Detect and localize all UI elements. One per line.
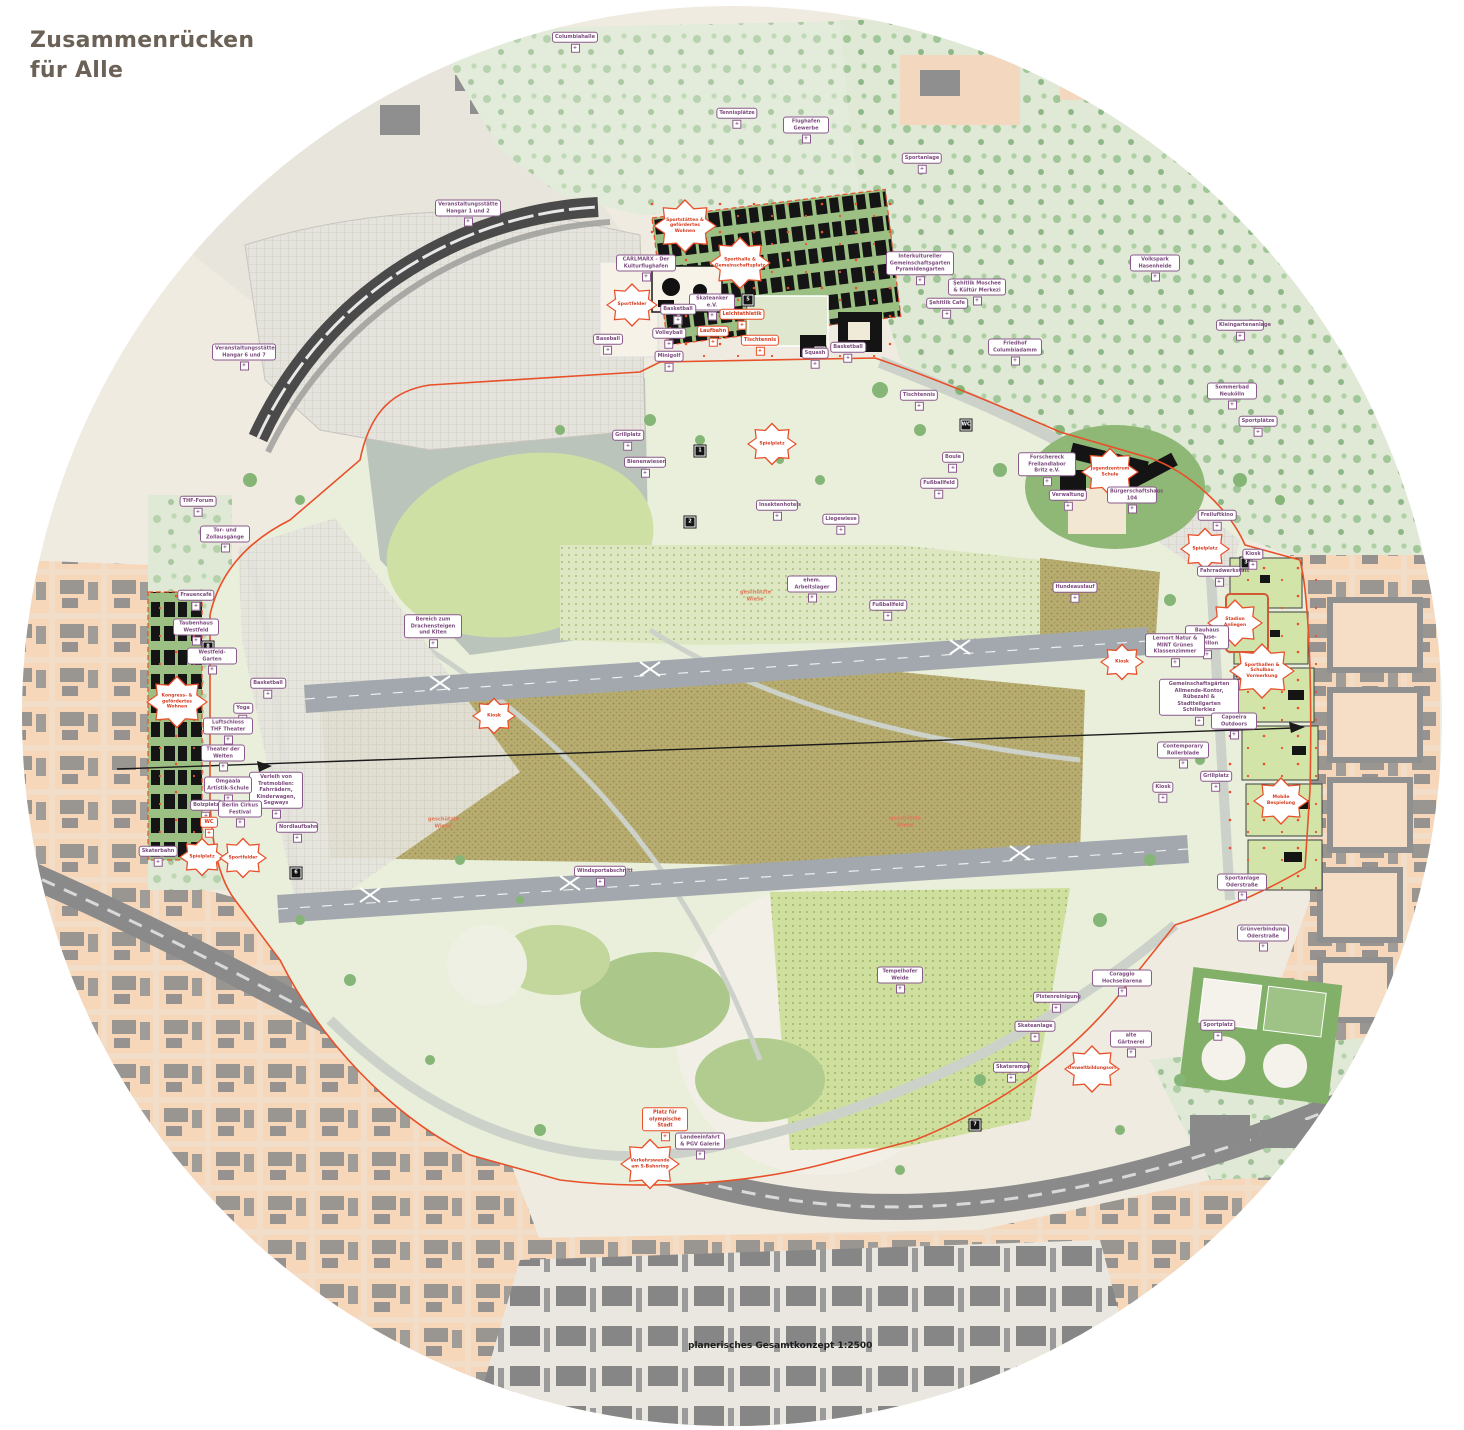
poi-pin-icon: + [756, 346, 765, 355]
map-label: Kiosk+ [1152, 782, 1173, 803]
map-label: Columbiahalle+ [552, 32, 598, 53]
map-label: Veranstaltungsstätte Hangar 6 und 7+ [212, 344, 276, 371]
map-label: Grillplatz+ [1200, 771, 1232, 792]
map-label: Baseball+ [593, 334, 623, 355]
map-label: Frauencafé+ [177, 590, 214, 611]
map-label: Basketball+ [830, 342, 866, 363]
poi-pin-icon: + [673, 315, 682, 324]
map-label: Minigolf+ [655, 351, 684, 372]
map-starburst-label: Sportfelder [219, 838, 267, 879]
poi-pin-icon: + [272, 809, 281, 818]
map-label: Volleyball+ [652, 328, 686, 349]
map-label: Şehitlik Moschee & Kültür Merkezi+ [948, 279, 1006, 306]
poi-pin-icon: + [464, 218, 473, 227]
poi-pin-icon: + [208, 666, 217, 675]
map-starburst-label: Spielplatz [747, 423, 797, 466]
map-starburst-label: Kiosk [472, 698, 516, 735]
poi-pin-icon: + [884, 611, 893, 620]
poi-pin-icon: + [696, 1151, 705, 1160]
map-label: geschützte Wiese [888, 815, 922, 830]
poi-pin-icon: + [1259, 943, 1268, 952]
map-label: alte Gärtnerei+ [1110, 1031, 1152, 1058]
map-label: Liegewiese+ [822, 514, 859, 535]
poi-pin-icon: + [240, 362, 249, 371]
poi-pin-icon: + [224, 736, 233, 745]
map-labels-layer: Columbiahalle+Tennisplätze+Flughafen Gew… [0, 0, 1464, 1430]
map-marker: 9 [1235, 668, 1246, 679]
poi-pin-icon: + [1213, 1031, 1222, 1040]
map-label: Fußballfeld+ [869, 600, 907, 621]
map-label: geschützte Wiese [738, 589, 772, 604]
map-starburst-label: Mobile Bespielung [1253, 777, 1309, 825]
map-label: geschützte Wiese [426, 816, 460, 831]
poi-pin-icon: + [1151, 273, 1160, 282]
map-label: Flughafen Gewerbe+ [783, 117, 829, 144]
map-label: Basketball+ [250, 678, 286, 699]
map-marker: 2 [685, 517, 696, 528]
map-label: Skaterbahn+ [139, 846, 178, 867]
poi-pin-icon: + [1171, 658, 1180, 667]
poi-pin-icon: + [1212, 521, 1221, 530]
map-label: Berlin Cirkus Festival+ [218, 801, 262, 828]
poi-pin-icon: + [1179, 760, 1188, 769]
poi-pin-icon: + [202, 811, 211, 820]
poi-pin-icon: + [918, 164, 927, 173]
map-label: Tischtennis+ [741, 335, 779, 356]
map-label: Grillplatz+ [612, 430, 644, 451]
poi-pin-icon: + [641, 468, 650, 477]
map-label: Volkspark Hasenheide+ [1130, 255, 1180, 282]
poi-pin-icon: + [1118, 988, 1127, 997]
map-label: Bauhaus Reuse-Pavillon+ [1185, 625, 1229, 659]
map-label: Interkultureller Gemeinschaftsgarten Pyr… [886, 251, 954, 285]
map-starburst-label: Kongress- & gefördertes Wohnen [146, 676, 208, 729]
poi-pin-icon: + [1064, 501, 1073, 510]
map-label: Pistenreinigung+ [1033, 992, 1079, 1013]
map-label: Skaterampe+ [993, 1062, 1029, 1083]
poi-pin-icon: + [193, 507, 202, 516]
map-label: Windsportabschnitt+ [574, 866, 626, 887]
map-starburst-label: Sportstätten & gefördertes Wohnen [653, 199, 717, 253]
map-label: Tempelhofer Weide+ [877, 967, 923, 994]
poi-pin-icon: + [293, 833, 302, 842]
map-label: Fußballfeld+ [920, 478, 958, 499]
map-label: Laufbahn+ [697, 326, 729, 347]
map-caption: planerisches Gesamtkonzept 1:2500 [688, 1341, 872, 1351]
poi-pin-icon: + [843, 353, 852, 362]
map-starburst-label: Stadion Anliegen [1207, 599, 1263, 647]
map-label: Insektenhotels+ [756, 500, 798, 521]
poi-pin-icon: + [1212, 782, 1221, 791]
poi-pin-icon: + [661, 1132, 670, 1141]
map-label: THF-Forum+ [180, 496, 217, 517]
poi-pin-icon: + [1007, 1073, 1016, 1082]
map-starburst-label: Spielplatz [179, 838, 225, 877]
page-title: Zusammenrücken für Alle [30, 26, 254, 85]
map-label: WC+ [200, 817, 218, 838]
poi-pin-icon: + [205, 828, 214, 837]
map-starburst-label: Spielplatz [1180, 528, 1230, 571]
poi-pin-icon: + [1254, 427, 1263, 436]
map-label: Sportplatz+ [1200, 1020, 1235, 1041]
poi-pin-icon: + [1127, 1049, 1136, 1058]
map-marker: WC [961, 420, 972, 431]
poi-pin-icon: + [708, 312, 717, 321]
map-label: Tischtennis+ [900, 390, 938, 411]
poi-pin-icon: + [836, 525, 845, 534]
poi-pin-icon: + [916, 276, 925, 285]
poi-pin-icon: + [239, 714, 248, 723]
map-label: Sommerbad Neukölln+ [1207, 383, 1257, 410]
map-label: Gemeinschaftsgärten Allmende-Kontor, Rüb… [1159, 679, 1239, 726]
poi-pin-icon: + [224, 795, 233, 804]
map-label: Coraggio Hochseilarena+ [1092, 970, 1152, 997]
poi-pin-icon: + [1238, 892, 1247, 901]
poi-pin-icon: + [948, 463, 957, 472]
map-label: Boule+ [942, 452, 964, 473]
poi-pin-icon: + [219, 763, 228, 772]
map-label: Landeeinfahrt & PGV Galerie+ [675, 1133, 725, 1160]
poi-pin-icon: + [709, 337, 718, 346]
map-label: Bolzplatz+ [190, 800, 222, 821]
map-label: Şehitlik Cafe+ [926, 298, 968, 319]
map-label: Verleih von Tretmobilen: Fahrrädern, Kin… [249, 772, 303, 819]
poi-pin-icon: + [1215, 577, 1224, 586]
map-label: Platz für olympische Stadt+ [642, 1107, 688, 1141]
map-label: Bienenwiesen+ [624, 457, 666, 478]
map-marker: 6 [291, 868, 302, 879]
poi-pin-icon: + [811, 359, 820, 368]
map-label: Basketball+ [660, 304, 696, 325]
poi-pin-icon: + [665, 339, 674, 348]
poi-pin-icon: + [1158, 793, 1167, 802]
poi-pin-icon: + [773, 511, 782, 520]
poi-pin-icon: + [1030, 1032, 1039, 1041]
map-label: Capoeira Outdoors+ [1211, 713, 1257, 740]
map-label: Tor- und Zollausgänge+ [200, 526, 250, 553]
poi-pin-icon: + [429, 639, 438, 648]
poi-pin-icon: + [942, 309, 951, 318]
map-label: Skateanlage+ [1014, 1021, 1055, 1042]
poi-pin-icon: + [973, 297, 982, 306]
map-starburst-label: Jugendzentrum Schule [1081, 448, 1139, 497]
poi-pin-icon: + [1203, 650, 1212, 659]
poi-pin-icon: + [733, 119, 742, 128]
map-label: Forschereck Freilandlabor Britz e.V.+ [1018, 452, 1076, 486]
map-label: Freiluftkino+ [1198, 510, 1237, 531]
poi-pin-icon: + [935, 489, 944, 498]
map-label: Lernort Natur & MINT Grünes Klassenzimme… [1145, 633, 1205, 667]
map-label: Grünverbindung Oderstraße+ [1237, 925, 1289, 952]
poi-pin-icon: + [263, 689, 272, 698]
map-label: Luftschloss THF Theater+ [203, 718, 253, 745]
poi-pin-icon: + [1070, 593, 1079, 602]
poi-pin-icon: + [1052, 1003, 1061, 1012]
poi-pin-icon: + [808, 594, 817, 603]
map-label: Hundeauslauf+ [1052, 582, 1097, 603]
map-label: Skateanker e.V.+ [689, 294, 735, 321]
poi-pin-icon: + [1228, 401, 1237, 410]
poi-pin-icon: + [191, 601, 200, 610]
poi-pin-icon: + [624, 441, 633, 450]
map-label: Nordlaufbahn+ [276, 822, 318, 843]
poi-pin-icon: + [1128, 505, 1137, 514]
poi-pin-icon: + [1236, 331, 1245, 340]
map-label: Contemporary Rollerblade+ [1157, 742, 1209, 769]
poi-pin-icon: + [665, 362, 674, 371]
poi-pin-icon: + [192, 637, 201, 646]
map-label: Sportanlage+ [902, 153, 942, 174]
map-label: Fahrradwerkstatt+ [1197, 566, 1241, 587]
map-label: CARLMARX - Der Kulturflughafen+ [616, 255, 676, 282]
map-label: Omgaala Artistik-Schule+ [204, 777, 252, 804]
poi-pin-icon: + [570, 43, 579, 52]
map-label: Veranstaltungsstätte Hangar 1 und 2+ [435, 200, 501, 227]
poi-pin-icon: + [1043, 477, 1052, 486]
map-starburst-label: Sportfelder [606, 283, 658, 327]
map-label: ehem. Arbeitslager+ [787, 576, 837, 603]
map-label: Bürgerschaftshaus 104+ [1107, 487, 1157, 514]
map-label: Theater der Welten+ [201, 745, 245, 772]
map-starburst-label: Verkehrswende am S-Bahnring [620, 1139, 680, 1190]
poi-pin-icon: + [1230, 731, 1239, 740]
poi-pin-icon: + [915, 401, 924, 410]
map-marker: 8 [203, 642, 214, 653]
map-starburst-label: Sporthalle & Gemeinschaftsplatz [709, 237, 771, 290]
poi-pin-icon: + [738, 320, 747, 329]
poi-pin-icon: + [1195, 716, 1204, 725]
map-label: Sportplätze+ [1239, 416, 1278, 437]
map-label: Yoga+ [233, 703, 253, 724]
poi-pin-icon: + [236, 819, 245, 828]
map-label: Leichtathletik+ [719, 309, 764, 330]
map-label: Tennisplätze+ [716, 108, 757, 129]
map-marker: 3 [1241, 558, 1252, 569]
poi-pin-icon: + [896, 985, 905, 994]
poi-pin-icon: + [802, 135, 811, 144]
map-marker: 4 [815, 347, 826, 358]
map-starburst-label: Kiosk [1100, 644, 1144, 681]
map-marker: 7 [970, 1120, 981, 1131]
poi-pin-icon: + [604, 345, 613, 354]
poi-pin-icon: + [596, 877, 605, 886]
map-label: Bereich zum Drachensteigen und Kiten+ [404, 614, 462, 648]
map-marker: 1 [695, 446, 706, 457]
masterplan-page: Columbiahalle+Tennisplätze+Flughafen Gew… [0, 0, 1464, 1430]
poi-pin-icon: + [642, 273, 651, 282]
map-starburst-label: Umweltbildungsort [1064, 1045, 1120, 1093]
poi-pin-icon: + [1011, 357, 1020, 366]
map-label: Verwaltung+ [1049, 490, 1087, 511]
poi-pin-icon: + [154, 857, 163, 866]
map-label: Kleingartenanlage+ [1216, 320, 1264, 341]
map-label: Friedhof Columbiadamm+ [988, 339, 1042, 366]
map-label: Sportanlage Oderstraße+ [1217, 874, 1267, 901]
poi-pin-icon: + [221, 544, 230, 553]
map-marker: 5 [743, 295, 754, 306]
